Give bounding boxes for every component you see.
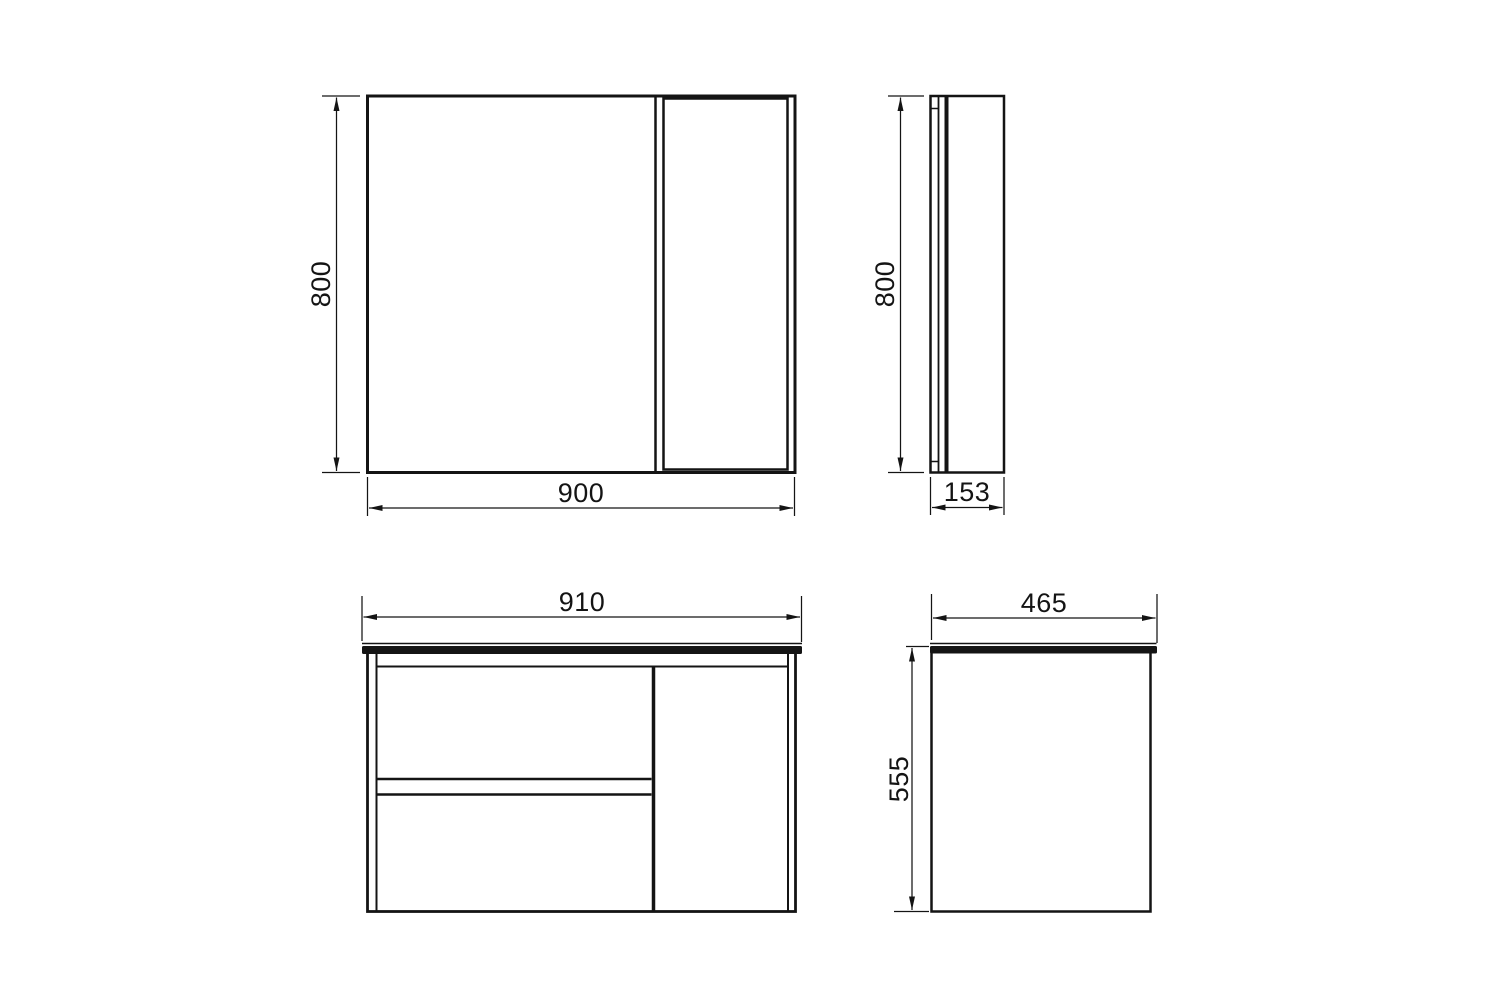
mirror-front-outline (368, 96, 796, 473)
dimension-label: 800 (870, 261, 900, 308)
vanity-body-outline (368, 650, 796, 912)
mirror-side-depth-dimension: 153 (931, 477, 1005, 515)
dimension-label: 900 (558, 478, 605, 508)
mirror-side-view: 800 153 (870, 96, 1004, 515)
drawing-page: 800 900 800 153 (0, 0, 1500, 1000)
dimension-label: 800 (306, 261, 336, 308)
vanity-side-outline (932, 652, 1151, 912)
dimension-label: 555 (884, 756, 914, 803)
mirror-front-height-dimension: 800 (306, 96, 360, 473)
vanity-side-view: 465 555 (884, 588, 1157, 912)
technical-drawing-canvas: 800 900 800 153 (0, 0, 1500, 1000)
countertop-slab (362, 646, 802, 654)
mirror-side-outline (931, 96, 1005, 473)
vanity-side-height-dimension: 555 (884, 647, 929, 912)
vanity-front-width-dimension: 910 (362, 587, 802, 642)
countertop-slab-profile (930, 646, 1157, 654)
mirror-side-height-dimension: 800 (870, 96, 924, 473)
dimension-label: 153 (944, 477, 991, 507)
vanity-front-view: 910 (362, 587, 802, 912)
dimension-label: 465 (1021, 588, 1068, 618)
mirror-front-width-dimension: 900 (368, 477, 795, 516)
dimension-label: 910 (559, 587, 606, 617)
vanity-side-depth-dimension: 465 (932, 588, 1158, 643)
mirror-front-view: 800 900 (306, 96, 795, 516)
